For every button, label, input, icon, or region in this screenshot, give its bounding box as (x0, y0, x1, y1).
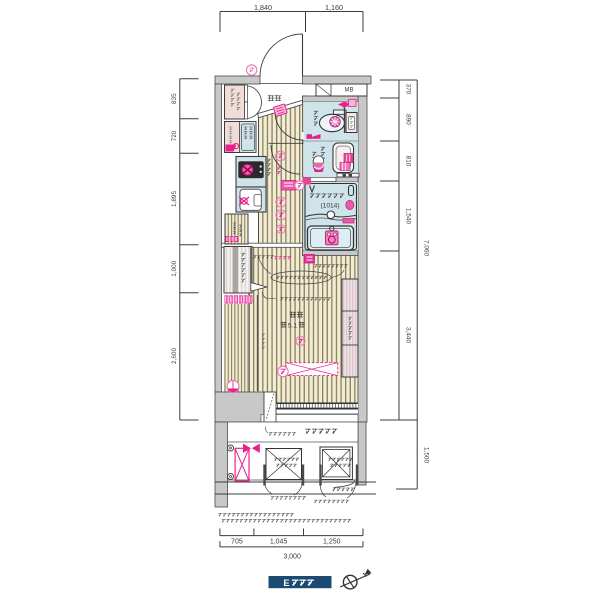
svg-text:890: 890 (405, 114, 412, 125)
svg-text:1,840: 1,840 (254, 3, 272, 12)
svg-text:2,600: 2,600 (171, 348, 178, 364)
svg-text:1,540: 1,540 (405, 208, 412, 224)
svg-text:1,000: 1,000 (171, 260, 178, 276)
svg-text:370: 370 (405, 84, 412, 95)
svg-text:705: 705 (231, 539, 243, 546)
svg-text:1,250: 1,250 (323, 539, 341, 546)
svg-text:E: E (283, 578, 289, 588)
svg-text:5.1: 5.1 (288, 322, 297, 329)
svg-text:MB: MB (345, 88, 354, 94)
svg-text:(1014): (1014) (320, 203, 339, 210)
svg-text:3,440: 3,440 (405, 327, 412, 343)
svg-text:835: 835 (171, 93, 178, 104)
svg-text:720: 720 (171, 130, 178, 141)
svg-text:1,160: 1,160 (325, 3, 343, 12)
svg-text:1,895: 1,895 (171, 191, 178, 207)
svg-text:1,500: 1,500 (423, 447, 430, 463)
svg-text:3,000: 3,000 (283, 554, 301, 561)
svg-text:7,060: 7,060 (423, 240, 430, 256)
svg-text:810: 810 (405, 156, 412, 167)
svg-text:1,045: 1,045 (270, 539, 288, 546)
